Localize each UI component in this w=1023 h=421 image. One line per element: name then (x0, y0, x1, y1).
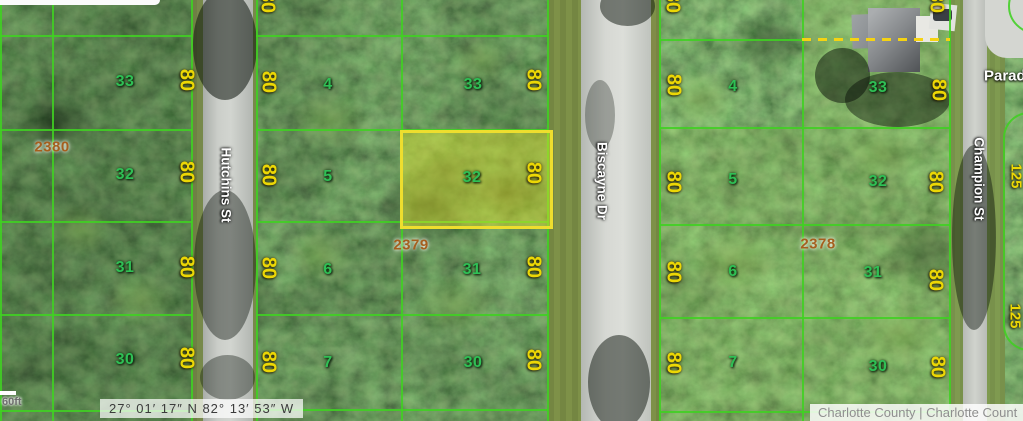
lot-number-label: 32 (869, 173, 888, 191)
parcel-line-h (0, 35, 192, 37)
parcel-line-h (659, 39, 804, 41)
street-label-hutchins: Hutchins St (219, 147, 234, 222)
lot-number-label: 33 (464, 76, 483, 94)
parcel-line-h (0, 129, 192, 131)
coordinates-badge: 27° 01′ 17″ N 82° 13′ 53″ W (100, 399, 303, 418)
dimension-label: 80 (175, 256, 198, 278)
parcel-line-v (802, 0, 804, 421)
dimension-label: 125 (1008, 163, 1023, 188)
dimension-label: 80 (925, 0, 948, 13)
parcel-line-h (256, 35, 548, 37)
lot-number-label: 30 (869, 358, 888, 376)
attribution-badge: Charlotte County | Charlotte Count (810, 404, 1023, 421)
dimension-label: 80 (522, 69, 545, 91)
street-label-champion: Champion St (972, 137, 987, 220)
dimension-label: 80 (662, 74, 685, 96)
dimension-label: 80 (924, 269, 947, 291)
parcel-line-v (0, 0, 2, 421)
map-canvas[interactable]: 2380 2379 2378 33 32 31 30 4 5 6 7 33 32… (0, 0, 1023, 421)
lot-number-label: 4 (323, 76, 332, 94)
dimension-label: 80 (257, 71, 280, 93)
dimension-label: 80 (522, 162, 545, 184)
lot-number-label: 5 (323, 168, 332, 186)
parcel-line-h (0, 314, 192, 316)
parcel-line-h (256, 314, 548, 316)
lot-number-label: 7 (323, 354, 332, 372)
lot-number-label: 30 (116, 351, 135, 369)
dimension-label: 80 (522, 349, 545, 371)
parcel-line-v (52, 0, 54, 421)
dimension-label: 80 (926, 356, 949, 378)
lot-number-label: 31 (116, 259, 135, 277)
parcel-line-h (0, 221, 192, 223)
dimension-label: 80 (522, 256, 545, 278)
lot-number-label: 4 (728, 78, 737, 96)
lot-number-label: 7 (728, 354, 737, 372)
dimension-label: 80 (662, 352, 685, 374)
dimension-label: 125 (1007, 303, 1023, 328)
scale-bar (0, 391, 16, 395)
dimension-label: 80 (257, 164, 280, 186)
parcel-line-v (949, 0, 951, 421)
lot-number-label: 32 (116, 166, 135, 184)
lot-number-label: 31 (463, 261, 482, 279)
dimension-label: 80 (175, 347, 198, 369)
dimension-label: 80 (175, 161, 198, 183)
scale-label: 60ft (2, 396, 22, 408)
parcel-line-h (659, 224, 951, 226)
parcel-line-h (659, 317, 951, 319)
dimension-label: 80 (924, 171, 947, 193)
lot-number-label: 6 (728, 263, 737, 281)
block-number-label: 2379 (393, 237, 428, 254)
street-label-paradise: Paradi (984, 68, 1023, 85)
dimension-label: 80 (662, 171, 685, 193)
block-number-label: 2380 (34, 139, 69, 156)
lot-number-label: 30 (464, 354, 483, 372)
road-biscayne-dr (581, 0, 651, 421)
dashed-boundary-line (802, 38, 950, 41)
lot-number-label-highlighted: 32 (463, 169, 482, 187)
top-ui-strip (0, 0, 160, 5)
street-label-biscayne: Biscayne Dr (595, 142, 610, 220)
dimension-label: 80 (256, 0, 279, 13)
dimension-label: 80 (257, 257, 280, 279)
block-number-label: 2378 (800, 236, 835, 253)
attribution-text: Charlotte County | Charlotte Count (818, 405, 1017, 420)
dimension-label: 80 (662, 261, 685, 283)
lot-number-label: 33 (869, 79, 888, 97)
lot-number-label: 33 (116, 73, 135, 91)
lot-number-label: 5 (728, 171, 737, 189)
dimension-label: 80 (661, 0, 684, 13)
lot-number-label: 31 (864, 264, 883, 282)
dimension-label: 80 (257, 351, 280, 373)
coordinates-text: 27° 01′ 17″ N 82° 13′ 53″ W (109, 401, 294, 416)
dimension-label: 80 (927, 79, 950, 101)
dimension-label: 80 (175, 69, 198, 91)
parcel-line-h (659, 127, 951, 129)
lot-number-label: 6 (323, 261, 332, 279)
